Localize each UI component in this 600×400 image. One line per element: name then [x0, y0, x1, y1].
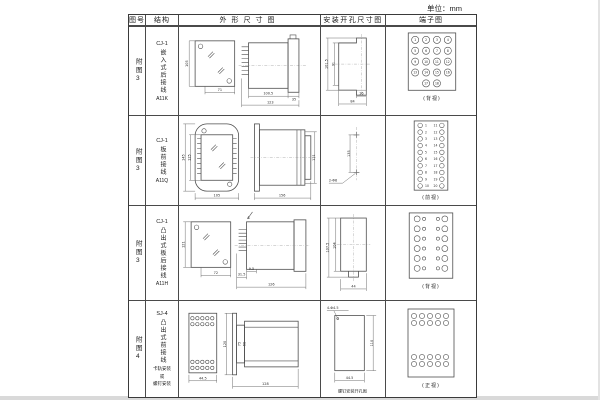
pin-number: 2	[425, 38, 427, 42]
pin-number: 13	[413, 71, 417, 75]
dim-label: 110	[370, 340, 374, 347]
row2-structure-cell: CJ-1 板前接线 A11Q	[146, 116, 179, 206]
row3-terminal-cell: (背视)	[386, 206, 476, 301]
pin-number: 17	[434, 164, 438, 168]
dim-label: 44	[351, 284, 355, 288]
row3-front-view: 121 72	[182, 222, 231, 277]
pin-number: 11	[434, 124, 438, 128]
terminal-pins	[411, 313, 448, 366]
dim-label: 126	[268, 283, 275, 287]
pin-number: 1	[414, 38, 416, 42]
row3-structure-cell: CJ-1 凸出式板后接线 A11H	[146, 206, 179, 301]
pin-number: 15	[434, 150, 438, 154]
pin-number: 9	[425, 177, 427, 181]
row4-figure-no-cell: 附图4	[129, 301, 146, 397]
pin-number: 4	[425, 144, 427, 148]
pin-number: 16	[434, 157, 438, 161]
dim-label: 16	[359, 92, 363, 96]
pin-number: 18	[435, 82, 439, 86]
row3-outline-diagram: 121 72 31.5 9.5	[179, 206, 320, 300]
dim-label: 121	[182, 241, 186, 248]
row4-front-view: 44.5	[189, 313, 217, 383]
row1-side-view: 100.5 35 123	[239, 35, 306, 107]
row4-terminal-diagram: (正视)	[386, 301, 476, 397]
pin-number: 14	[434, 144, 438, 148]
row2-outline-diagram: 145 125 105 156	[179, 116, 320, 205]
mount-note-line: 或	[160, 374, 165, 380]
row4-outline-diagram: 44.5 120 75 68 128	[179, 301, 320, 397]
dim-label: 135	[347, 150, 351, 157]
dim-label: 123	[267, 101, 274, 105]
row2-terminal-cell: 1 2 3 4 5 6 7 8 9 10 11 12 13 14 15 16 1	[386, 116, 476, 206]
model-label: SJ-4	[156, 311, 167, 317]
dim-label: 156	[279, 194, 286, 198]
figure-no: 附图3	[134, 240, 141, 266]
pin-number: 16	[446, 71, 450, 75]
col-header-outline: 外形尺寸图	[179, 15, 321, 27]
row2-outline-cell: 145 125 105 156	[179, 116, 321, 206]
pin-number: 8	[425, 171, 427, 175]
pin-number: 9	[414, 60, 416, 64]
row2-terminal-diagram: 1 2 3 4 5 6 7 8 9 10 11 12 13 14 15 16 1	[386, 116, 476, 205]
dim-label: 84	[350, 100, 354, 104]
structure-label: 板前接线	[159, 146, 165, 176]
dim-label: 105	[214, 194, 221, 198]
hole-spec-label: 2-Φ6	[329, 179, 337, 183]
figure-no: 附图3	[134, 58, 141, 84]
hole-spec-label: 4-Φ4.5	[327, 306, 339, 310]
row1-figure-no-cell: 附图3	[129, 27, 146, 116]
row1-terminal-cell: 1 2 3 4 5 6 7 8 9 10 11 12 13 14 15 16 1	[386, 27, 476, 116]
pin-number: 10	[425, 184, 429, 188]
pin-number: 19	[434, 177, 438, 181]
figure-no: 附图3	[134, 148, 141, 174]
dim-label: 101.5	[324, 59, 328, 69]
pin-number: 13	[434, 137, 438, 141]
pin-number: 5	[425, 150, 427, 154]
row4-outline-cell: 44.5 120 75 68 128	[179, 301, 321, 397]
model-label: CJ-1	[156, 219, 168, 225]
pin-number: 1	[425, 124, 427, 128]
dim-label: 35	[292, 98, 296, 102]
dim-label: 75	[238, 342, 242, 346]
row2-install-diagram: 135 2-Φ6	[321, 116, 385, 205]
row1-front-view: 105 71	[185, 41, 234, 94]
pin-number: 15	[435, 71, 439, 75]
dim-label: 128	[262, 382, 269, 386]
figure-no: 附图4	[134, 336, 141, 362]
pin-number: 5	[414, 49, 416, 53]
row1-install-cell: 101.5 91 16 84	[321, 27, 386, 116]
dim-label: 104	[332, 242, 336, 249]
pin-number: 7	[436, 49, 438, 53]
row2-figure-no-cell: 附图3	[129, 116, 146, 206]
dim-label: 107.5	[325, 243, 329, 253]
pin-number: 18	[434, 171, 438, 175]
pin-number: 3	[425, 137, 427, 141]
row3-install-cell: 107.5 104 44	[321, 206, 386, 301]
terminal-pins	[414, 216, 448, 271]
code-label: A11K	[156, 96, 168, 102]
row2-install-cell: 135 2-Φ6	[321, 116, 386, 206]
dim-label: 145	[182, 154, 186, 161]
dim-label: 71	[218, 88, 222, 92]
view-label: (前视)	[422, 194, 440, 201]
install-caption: 螺钉安装开孔图	[338, 387, 367, 393]
row2-front-view: 145 125 105	[182, 124, 239, 200]
dim-label: 100.5	[263, 92, 273, 96]
dim-label: 121	[312, 154, 316, 161]
model-label: CJ-1	[156, 138, 168, 144]
row4-terminal-cell: (正视)	[386, 301, 476, 397]
pin-number: 2	[425, 130, 427, 134]
spec-table: 图号 结构 外形尺寸图 安装开孔尺寸图 端子图 附图3 CJ-1 嵌入式后接线 …	[128, 14, 477, 398]
col-header-install: 安装开孔尺寸图	[321, 15, 386, 27]
row4-side-view: 120 75 68 128	[223, 313, 298, 388]
row1-outline-cell: 105 71 100.5 35 123	[179, 27, 321, 116]
row1-install-diagram: 101.5 91 16 84	[321, 27, 385, 115]
pin-number: 11	[435, 60, 439, 64]
dim-label: 9.5	[249, 267, 255, 271]
row3-install-diagram: 107.5 104 44	[321, 206, 385, 300]
pin-number: 6	[425, 49, 427, 53]
row1-terminal-diagram: 1 2 3 4 5 6 7 8 9 10 11 12 13 14 15 16 1	[386, 27, 476, 115]
row4-structure-cell: SJ-4 凸出式前接线 卡轨安装 或 螺钉安装	[146, 301, 179, 397]
structure-label: 凸出式前接线	[159, 319, 165, 364]
col-header-figure-no: 图号	[129, 15, 146, 27]
pin-number: 17	[424, 82, 428, 86]
unit-label: 单位：mm	[360, 3, 462, 14]
model-label: CJ-1	[156, 41, 168, 47]
dim-label: 44.5	[346, 376, 354, 380]
row4-install-diagram: 4-Φ4.5 110 44.5 螺钉安装开孔图	[321, 301, 385, 397]
dim-label: 125	[188, 154, 192, 161]
mount-note-line: 卡轨安装	[153, 366, 171, 372]
row3-outline-cell: 121 72 31.5 9.5	[179, 206, 321, 301]
terminal-pins: 1 2 3 4 5 6 7 8 9 10 11 12 13 14 15 16 1	[418, 123, 444, 188]
code-label: A11Q	[156, 178, 168, 184]
pin-number: 4	[447, 38, 449, 42]
pin-number: 20	[434, 184, 438, 188]
pin-number: 14	[424, 71, 428, 75]
mount-note-line: 螺钉安装	[153, 381, 171, 387]
row1-structure-cell: CJ-1 嵌入式后接线 A11K	[146, 27, 179, 116]
structure-label: 嵌入式后接线	[159, 49, 165, 94]
dim-label: 120	[223, 341, 227, 348]
row4-install-cell: 4-Φ4.5 110 44.5 螺钉安装开孔图	[321, 301, 386, 397]
view-label: (背视)	[422, 283, 440, 290]
pin-number: 12	[434, 130, 438, 134]
col-header-structure: 结构	[146, 15, 179, 27]
view-label: (正视)	[422, 382, 440, 389]
structure-label: 凸出式板后接线	[159, 227, 165, 280]
row2-side-view: 156 121	[250, 124, 316, 200]
pin-number: 10	[424, 60, 428, 64]
view-label: (背视)	[423, 95, 441, 102]
dim-label: 44.5	[199, 376, 207, 380]
row3-terminal-diagram: (背视)	[386, 206, 476, 300]
row1-outline-diagram: 105 71 100.5 35 123	[179, 27, 320, 115]
pin-number: 3	[436, 38, 438, 42]
pin-number: 6	[425, 157, 427, 161]
dim-label: 91	[331, 62, 335, 66]
pin-number: 8	[447, 49, 449, 53]
dim-label: 31.5	[238, 273, 246, 277]
dim-label: 105	[185, 60, 189, 67]
col-header-terminal: 端子图	[386, 15, 476, 27]
dim-label: 72	[214, 271, 218, 275]
pin-number: 7	[425, 164, 427, 168]
row3-side-view: 31.5 9.5 126	[235, 212, 310, 289]
code-label: A11H	[156, 281, 168, 287]
document-page: 单位：mm 图号 结构 外形尺寸图 安装开孔尺寸图 端子图 附图3 CJ-1 嵌…	[0, 0, 600, 400]
row3-figure-no-cell: 附图3	[129, 206, 146, 301]
terminal-pins: 1 2 3 4 5 6 7 8 9 10 11 12 13 14 15 16 1	[412, 36, 452, 87]
pin-number: 12	[446, 60, 450, 64]
